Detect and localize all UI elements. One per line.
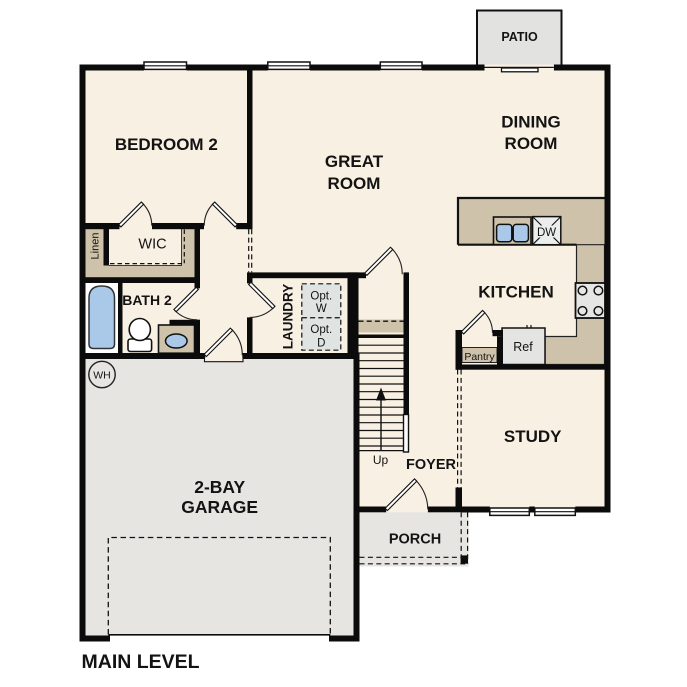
svg-text:KITCHEN: KITCHEN <box>478 282 554 301</box>
svg-text:LAUNDRY: LAUNDRY <box>280 284 295 350</box>
svg-text:FOYER: FOYER <box>406 457 456 473</box>
svg-text:D: D <box>317 338 325 350</box>
svg-text:PATIO: PATIO <box>501 30 538 44</box>
svg-text:ROOM: ROOM <box>328 174 381 193</box>
svg-text:GARAGE: GARAGE <box>181 497 258 517</box>
svg-text:GREAT: GREAT <box>325 152 384 171</box>
svg-text:Opt.: Opt. <box>310 324 332 336</box>
svg-text:DW: DW <box>537 227 556 239</box>
svg-text:Ref: Ref <box>513 340 533 354</box>
svg-text:PORCH: PORCH <box>389 531 441 547</box>
svg-text:BEDROOM 2: BEDROOM 2 <box>115 135 218 154</box>
svg-text:ROOM: ROOM <box>505 134 558 153</box>
svg-text:WIC: WIC <box>138 236 166 252</box>
svg-text:Opt.: Opt. <box>310 291 332 303</box>
svg-text:WH: WH <box>93 369 111 381</box>
svg-text:Up: Up <box>373 453 389 467</box>
svg-text:Linen: Linen <box>90 233 102 260</box>
svg-text:W: W <box>316 303 327 315</box>
svg-text:MAIN LEVEL: MAIN LEVEL <box>82 651 200 673</box>
svg-text:Pantry: Pantry <box>464 351 495 363</box>
svg-text:DINING: DINING <box>501 112 561 131</box>
svg-text:2-BAY: 2-BAY <box>194 477 245 497</box>
svg-text:BATH 2: BATH 2 <box>122 292 172 308</box>
svg-text:STUDY: STUDY <box>504 427 562 446</box>
